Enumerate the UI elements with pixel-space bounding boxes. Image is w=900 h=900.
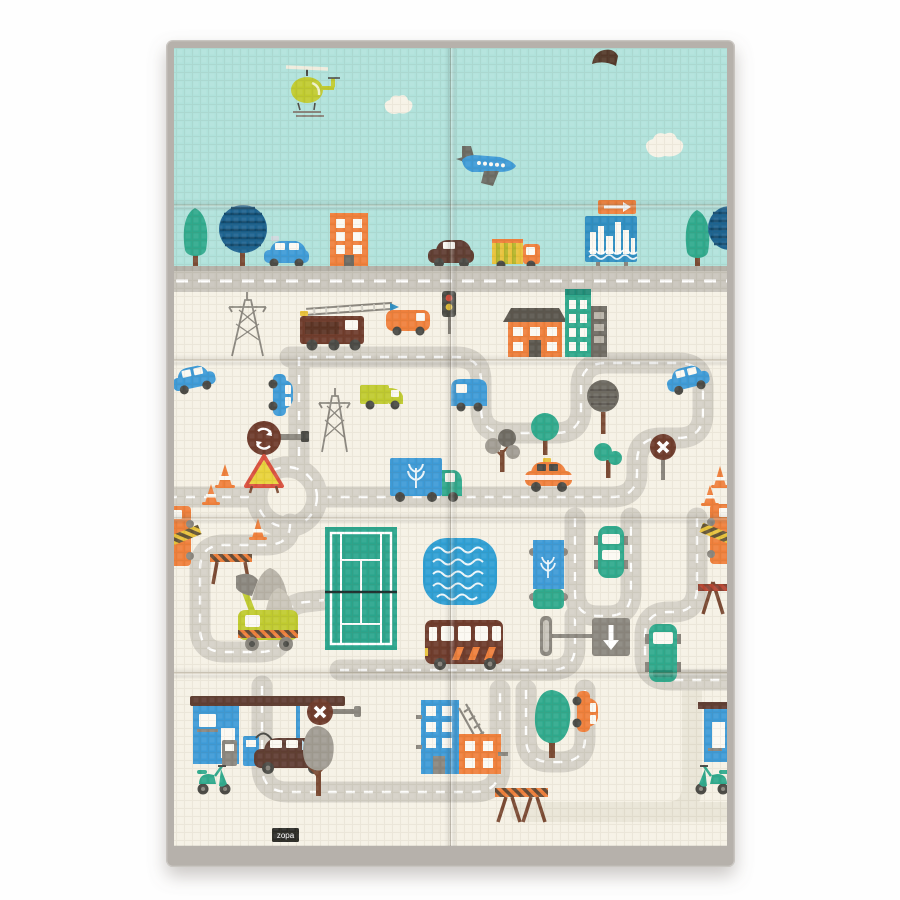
play-mat: zopa bbox=[159, 40, 752, 867]
mat-printed-surface: zopa bbox=[159, 48, 752, 867]
product-photo-stage: zopa bbox=[0, 0, 900, 900]
play-mat-illustration: zopa bbox=[0, 0, 900, 900]
